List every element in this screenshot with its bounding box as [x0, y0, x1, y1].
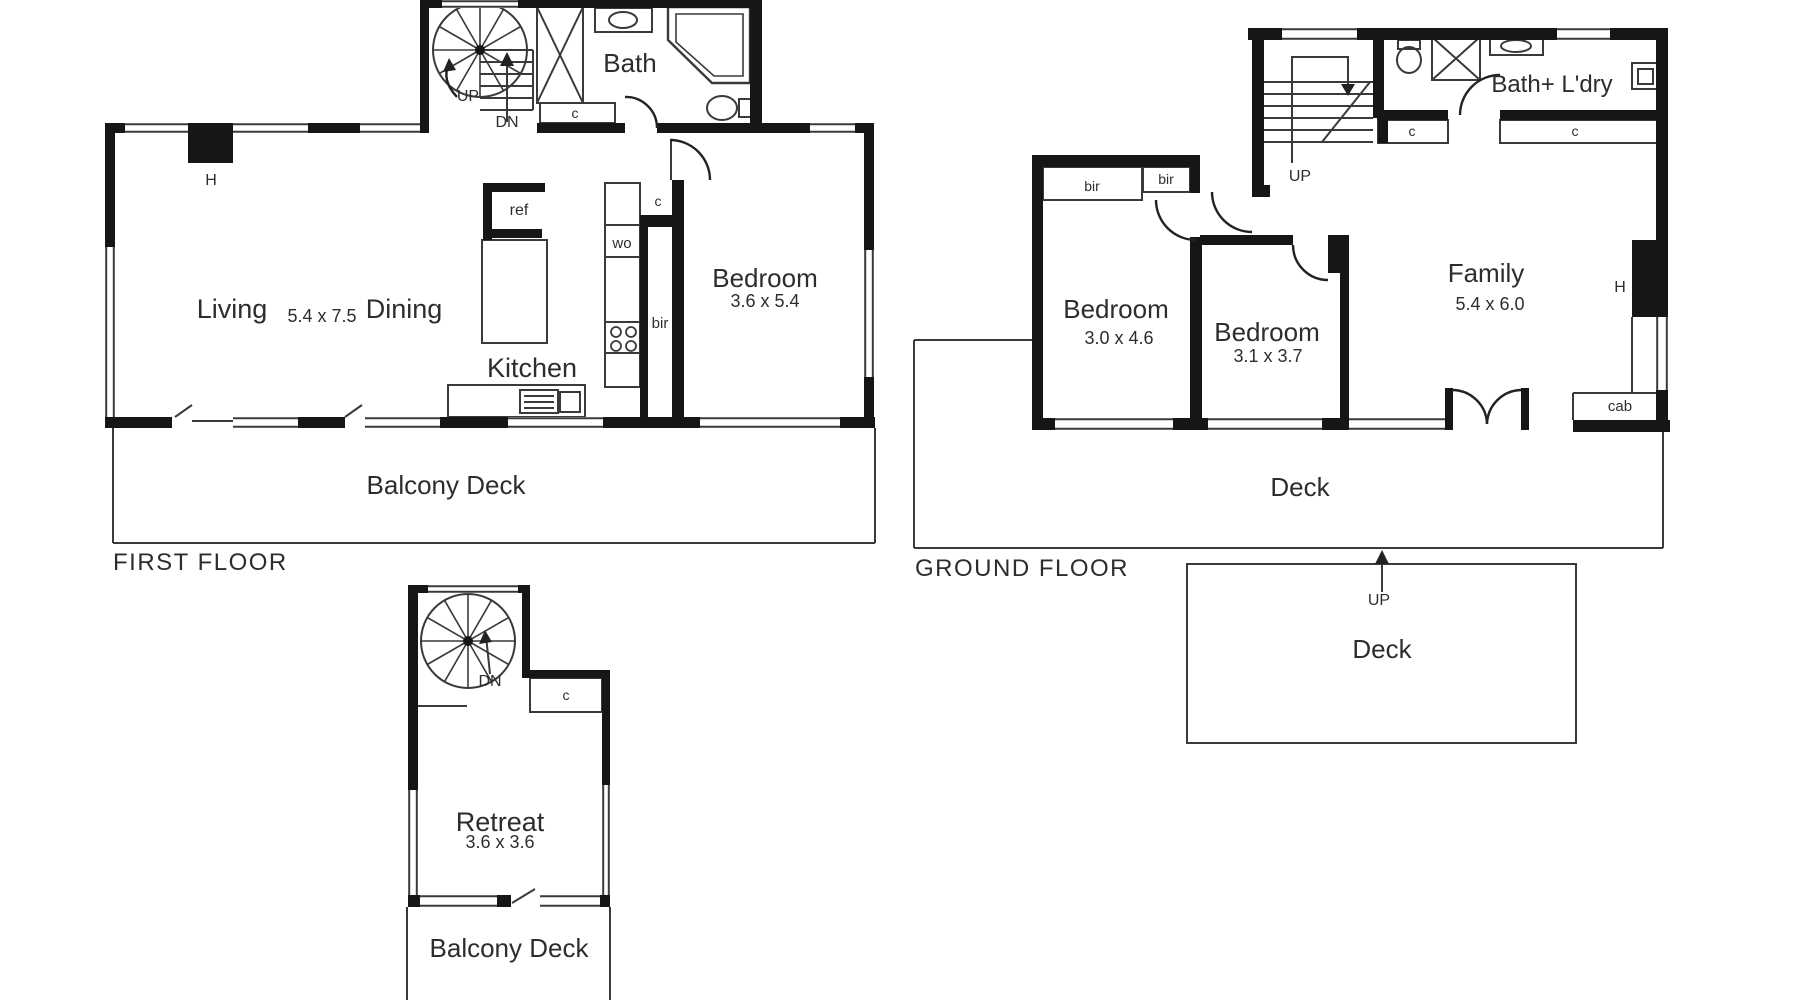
retreat-dimensions: 3.6 x 3.6: [465, 832, 534, 852]
ff-dn-arrowhead: [500, 52, 514, 66]
ff-bath-door: [625, 97, 657, 128]
gf-bedroom1-door: [1156, 200, 1196, 240]
wall-segment: [1200, 235, 1293, 245]
wall-segment: [657, 123, 762, 133]
gf-cupboard-right: [1500, 120, 1657, 143]
ff-bedroom-door: [670, 140, 710, 180]
ff-kitchen-cupboard-label: c: [655, 193, 662, 209]
ground-floor-title: GROUND FLOOR: [915, 555, 1129, 582]
window: [700, 417, 840, 428]
window: [508, 417, 603, 428]
wall-segment: [760, 123, 810, 133]
gf-family-dimensions: 5.4 x 6.0: [1455, 294, 1524, 314]
gf-cabinet-label: cab: [1608, 398, 1632, 415]
wall-segment: [1032, 155, 1043, 430]
window: [1208, 418, 1322, 430]
ff-stairs-dn-label: DN: [495, 114, 518, 131]
wall-segment: [1252, 28, 1264, 197]
wall-segment: [1373, 28, 1384, 118]
wall-segment: [1378, 110, 1388, 143]
spiral-newel: [463, 636, 473, 646]
gf-cupboard-right-label: c: [1572, 123, 1579, 139]
wall-segment: [1573, 420, 1670, 432]
window-openings: [105, 0, 1668, 907]
floor-plan-drawing: UPDNBathcHrefLiving5.4 x 7.5Diningwocbir…: [0, 0, 1800, 1000]
cooktop-burner: [611, 327, 621, 337]
kitchen-bench: [605, 183, 640, 387]
wall-segment: [750, 0, 762, 132]
ff-heater-label: H: [205, 172, 217, 189]
gf-cupboard-left-label: c: [1409, 123, 1416, 139]
cooktop-burner: [626, 327, 636, 337]
retreat-stairs-dn-label: DN: [478, 673, 501, 690]
gf-deck-label: Deck: [1270, 472, 1330, 502]
wall-segment: [537, 123, 625, 133]
retreat-dn-arrowhead: [479, 630, 492, 644]
wall-segment: [1328, 235, 1340, 273]
kitchen-sink-bowl: [560, 392, 580, 412]
wall-segment: [1521, 388, 1529, 430]
wall-segment: [640, 227, 648, 417]
wall-segment: [530, 0, 762, 8]
cooktop-burner: [611, 341, 621, 351]
gf-laundry-trough-inner: [1638, 69, 1653, 84]
window: [864, 250, 874, 377]
gf-lower-deck-label: Deck: [1352, 634, 1412, 664]
gf-bedroom2-door: [1293, 245, 1328, 280]
window: [1055, 418, 1173, 430]
wall-segment: [298, 417, 345, 428]
gf-bath-laundry-label: Bath+ L'dry: [1491, 71, 1612, 98]
retreat-cupboard-label: c: [563, 687, 570, 703]
wall-segment: [640, 215, 677, 227]
retreat-balcony-deck-label: Balcony Deck: [430, 933, 590, 963]
ff-wall-oven-label: wo: [611, 235, 631, 252]
gf-bedroom1-dimensions: 3.0 x 4.6: [1084, 328, 1153, 348]
ff-bath-label: Bath: [603, 48, 657, 78]
window: [442, 0, 518, 8]
window: [1557, 28, 1610, 40]
gf-heater-label: H: [1614, 279, 1626, 296]
ff-stairs-up-label: UP: [457, 88, 479, 105]
window: [428, 585, 518, 593]
window: [1656, 317, 1668, 390]
wall-segment: [603, 417, 700, 428]
wall-segment: [483, 229, 542, 238]
wall-segment: [420, 0, 429, 133]
cooktop-burner: [626, 341, 636, 351]
plan-line: [175, 405, 192, 417]
wall-segment: [1500, 110, 1657, 120]
gf-basin: [1501, 40, 1531, 52]
gf-french-door-right: [1487, 390, 1521, 424]
gf-stair-rail: [1292, 57, 1348, 82]
wall-segment: [408, 895, 420, 907]
wall-segment: [1656, 28, 1668, 240]
ff-built-in-robe-label: bir: [652, 315, 669, 332]
ff-bedroom-label: Bedroom: [712, 263, 818, 293]
gf-hall-door: [1212, 192, 1252, 232]
wall-segment: [600, 895, 610, 907]
gf-bedroom1-robe-right-label: bir: [1158, 171, 1174, 187]
first-floor-title: FIRST FLOOR: [113, 549, 288, 576]
gf-bedroom1-label: Bedroom: [1063, 294, 1169, 324]
wall-segment: [1190, 155, 1200, 193]
ff-dining-label: Dining: [366, 294, 443, 324]
ff-corner-bathtub-inner: [676, 14, 743, 76]
wall-segment: [105, 417, 172, 428]
window: [1282, 28, 1357, 40]
gf-stairs-up-label: UP: [1289, 168, 1311, 185]
wall-segment: [602, 678, 610, 785]
window: [233, 123, 308, 133]
wall-segment: [1190, 237, 1202, 430]
ff-kitchen-label: Kitchen: [487, 353, 577, 383]
ff-hall-cupboard-label: c: [572, 105, 579, 121]
window: [1347, 418, 1447, 430]
ff-fridge-label: ref: [510, 202, 529, 219]
wall-segment: [188, 123, 233, 163]
wall-segment: [672, 180, 684, 417]
wall-segment: [1032, 155, 1198, 167]
wall-segment: [1252, 185, 1270, 197]
window: [360, 123, 420, 133]
walls: [105, 0, 1670, 907]
ff-basin: [609, 12, 637, 28]
window: [408, 790, 418, 895]
wall-segment: [440, 417, 508, 428]
ff-balcony-deck-label: Balcony Deck: [367, 470, 527, 500]
floor-plan-page: UPDNBathcHrefLiving5.4 x 7.5Diningwocbir…: [0, 0, 1800, 1000]
gf-french-door-left: [1452, 390, 1487, 424]
wall-segment: [308, 123, 360, 133]
wall-segment: [522, 670, 610, 678]
wall-segment: [522, 585, 530, 678]
gf-toilet: [1397, 47, 1421, 73]
window: [810, 123, 855, 133]
wall-segment: [497, 895, 511, 907]
gf-bedroom2-dimensions: 3.1 x 3.7: [1233, 346, 1302, 366]
window: [365, 417, 440, 428]
window: [105, 247, 115, 417]
wall-segment: [864, 377, 874, 428]
spiral-newel: [475, 45, 485, 55]
wall-segment: [1357, 28, 1557, 40]
ff-living-label: Living: [197, 294, 268, 324]
wall-segment: [408, 585, 428, 593]
gf-bedroom2-label: Bedroom: [1214, 317, 1320, 347]
window: [420, 895, 497, 907]
window: [233, 417, 298, 428]
wall-segment: [1632, 240, 1668, 317]
wall-segment: [1340, 235, 1349, 430]
gf-deck-up-arrowhead: [1375, 550, 1389, 564]
ff-bedroom-dimensions: 3.6 x 5.4: [730, 291, 799, 311]
ff-toilet: [707, 96, 737, 120]
window: [125, 123, 188, 133]
gf-bedroom1-robe-left-label: bir: [1084, 178, 1100, 194]
gf-family-label: Family: [1448, 258, 1525, 288]
wall-segment: [518, 0, 530, 8]
wall-segment: [408, 585, 418, 790]
wall-segment: [105, 123, 115, 247]
gf-laundry-trough: [1632, 63, 1658, 89]
wall-segment: [1445, 388, 1453, 430]
gf-lower-deck-up-label: UP: [1368, 592, 1390, 609]
wall-segment: [420, 0, 442, 8]
wall-segment: [855, 123, 874, 133]
plan-line: [512, 889, 535, 903]
wall-segment: [483, 183, 545, 192]
wall-segment: [864, 123, 874, 250]
kitchen-island: [482, 240, 547, 343]
thin-linework: [113, 7, 1667, 1000]
plan-line: [345, 405, 362, 417]
ff-living-dining-dimensions: 5.4 x 7.5: [287, 306, 356, 326]
window: [540, 895, 600, 907]
window: [602, 785, 610, 895]
